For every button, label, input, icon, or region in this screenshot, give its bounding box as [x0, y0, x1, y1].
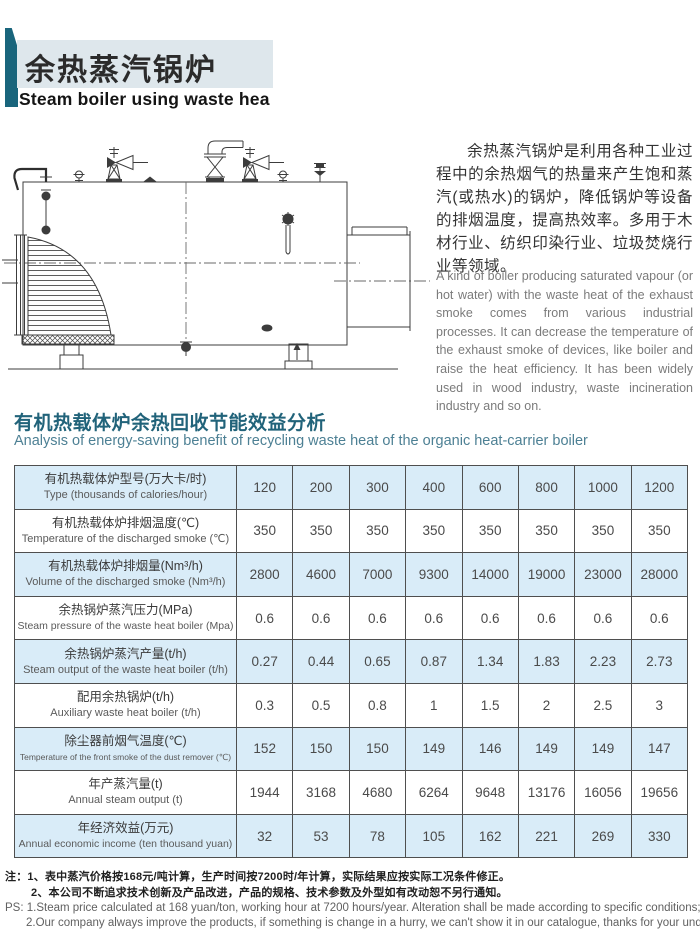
- row-label-cell: 有机热载体炉排烟量(Nm³/h)Volume of the discharged…: [15, 553, 237, 597]
- value-cell: 3: [631, 683, 687, 727]
- boiler-side-view-drawing: [0, 138, 432, 403]
- footnotes: 注：1、表中蒸汽价格按168元/吨计算，生产时间按7200时/年计算，实际结果应…: [5, 869, 695, 930]
- note-label: 注：: [5, 871, 27, 883]
- value-cell: 32: [237, 814, 293, 858]
- water-level-gauge-icon: [41, 190, 51, 235]
- value-cell: 0.6: [406, 596, 462, 640]
- table-row: 有机热载体炉型号(万大卡/时)Type (thousands of calori…: [15, 466, 688, 510]
- section-heading-en: Analysis of energy-saving benefit of rec…: [14, 433, 694, 449]
- value-cell: 0.6: [462, 596, 518, 640]
- value-cell: 4600: [293, 553, 349, 597]
- row-label-en: Annual steam output (t): [16, 793, 235, 808]
- value-cell: 350: [406, 509, 462, 553]
- value-cell: 6264: [406, 771, 462, 815]
- row-label-cell: 余热锅炉蒸汽产量(t/h)Steam output of the waste h…: [15, 640, 237, 684]
- value-cell: 400: [406, 466, 462, 510]
- value-cell: 2: [518, 683, 574, 727]
- value-cell: 0.5: [293, 683, 349, 727]
- value-cell: 0.6: [237, 596, 293, 640]
- value-cell: 350: [293, 509, 349, 553]
- value-cell: 9648: [462, 771, 518, 815]
- value-cell: 1.83: [518, 640, 574, 684]
- note-zh-1: 注：1、表中蒸汽价格按168元/吨计算，生产时间按7200时/年计算，实际结果应…: [5, 869, 695, 885]
- value-cell: 149: [575, 727, 631, 771]
- value-cell: 0.3: [237, 683, 293, 727]
- value-cell: 0.6: [575, 596, 631, 640]
- row-label-en: Volume of the discharged smoke (Nm³/h): [16, 575, 235, 590]
- value-cell: 146: [462, 727, 518, 771]
- value-cell: 350: [631, 509, 687, 553]
- value-cell: 19000: [518, 553, 574, 597]
- drain-hook-pipe: [14, 169, 52, 190]
- table-row: 除尘器前烟气温度(℃)Temperature of the front smok…: [15, 727, 688, 771]
- value-cell: 0.6: [631, 596, 687, 640]
- row-label-en: Type (thousands of calories/hour): [16, 488, 235, 503]
- value-cell: 149: [406, 727, 462, 771]
- value-cell: 9300: [406, 553, 462, 597]
- value-cell: 16056: [575, 771, 631, 815]
- note-en-2: 2.Our company always improve the product…: [5, 916, 695, 930]
- value-cell: 330: [631, 814, 687, 858]
- value-cell: 7000: [349, 553, 405, 597]
- value-cell: 152: [237, 727, 293, 771]
- row-label-cell: 年经济效益(万元)Annual economic income (ten tho…: [15, 814, 237, 858]
- table-row: 年经济效益(万元)Annual economic income (ten tho…: [15, 814, 688, 858]
- value-cell: 0.27: [237, 640, 293, 684]
- base-masonry: [22, 335, 114, 344]
- smoke-outlet-duct: [347, 227, 410, 331]
- intro-paragraph-en: A kind of boiler producing saturated vap…: [436, 267, 693, 416]
- value-cell: 0.8: [349, 683, 405, 727]
- page-title-en: Steam boiler using waste hea: [19, 89, 419, 110]
- value-cell: 269: [575, 814, 631, 858]
- row-label-zh: 余热锅炉蒸汽压力(MPa): [16, 602, 235, 619]
- row-label-zh: 余热锅炉蒸汽产量(t/h): [16, 646, 235, 663]
- value-cell: 221: [518, 814, 574, 858]
- value-cell: 53: [293, 814, 349, 858]
- value-cell: 147: [631, 727, 687, 771]
- row-label-zh: 有机热载体炉型号(万大卡/时): [16, 471, 235, 488]
- value-cell: 800: [518, 466, 574, 510]
- value-cell: 78: [349, 814, 405, 858]
- value-cell: 1944: [237, 771, 293, 815]
- row-label-cell: 余热锅炉蒸汽压力(MPa)Steam pressure of the waste…: [15, 596, 237, 640]
- value-cell: 350: [518, 509, 574, 553]
- value-cell: 3168: [293, 771, 349, 815]
- right-support-leg: [285, 343, 312, 369]
- value-cell: 2800: [237, 553, 293, 597]
- value-cell: 2.23: [575, 640, 631, 684]
- value-cell: 120: [237, 466, 293, 510]
- row-label-en: Temperature of the discharged smoke (℃): [16, 532, 235, 547]
- value-cell: 600: [462, 466, 518, 510]
- row-label-zh: 有机热载体炉排烟温度(℃): [16, 515, 235, 532]
- value-cell: 350: [237, 509, 293, 553]
- note-zh-2: 2、本公司不断追求技术创新及产品改进，产品的规格、技术参数及外型如有改动恕不另行…: [5, 885, 695, 901]
- value-cell: 150: [349, 727, 405, 771]
- table-row: 余热锅炉蒸汽产量(t/h)Steam output of the waste h…: [15, 640, 688, 684]
- value-cell: 0.65: [349, 640, 405, 684]
- row-label-en: Steam output of the waste heat boiler (t…: [16, 663, 235, 678]
- pipe-fitting-icon: [74, 171, 85, 182]
- value-cell: 1: [406, 683, 462, 727]
- row-label-en: Steam pressure of the waste heat boiler …: [16, 619, 235, 634]
- tube-bundle-section: [28, 237, 111, 335]
- row-label-zh: 年经济效益(万元): [16, 820, 235, 837]
- table-row: 余热锅炉蒸汽压力(MPa)Steam pressure of the waste…: [15, 596, 688, 640]
- value-cell: 0.6: [293, 596, 349, 640]
- row-label-zh: 有机热载体炉排烟量(Nm³/h): [16, 558, 235, 575]
- handhole-icon: [262, 325, 273, 332]
- value-cell: 0.6: [349, 596, 405, 640]
- inlet-flange: [14, 235, 27, 335]
- value-cell: 200: [293, 466, 349, 510]
- value-cell: 0.87: [406, 640, 462, 684]
- catalog-page: 余热蒸汽锅炉 Steam boiler using waste hea: [0, 0, 700, 930]
- intro-paragraph-zh: 余热蒸汽锅炉是利用各种工业过程中的余热烟气的热量来产生饱和蒸汽(或热水)的锅炉，…: [436, 140, 693, 278]
- value-cell: 23000: [575, 553, 631, 597]
- note-en-1: PS: 1.Steam price calculated at 168 yuan…: [5, 901, 695, 916]
- value-cell: 149: [518, 727, 574, 771]
- value-cell: 0.6: [518, 596, 574, 640]
- row-label-en: Auxiliary waste heat boiler (t/h): [16, 706, 235, 721]
- value-cell: 162: [462, 814, 518, 858]
- safety-valve-icon: [242, 147, 284, 182]
- value-cell: 28000: [631, 553, 687, 597]
- value-cell: 14000: [462, 553, 518, 597]
- table-row: 有机热载体炉排烟量(Nm³/h)Volume of the discharged…: [15, 553, 688, 597]
- row-label-zh: 除尘器前烟气温度(℃): [16, 733, 235, 750]
- table-row: 配用余热锅炉(t/h)Auxiliary waste heat boiler (…: [15, 683, 688, 727]
- left-support-leg: [60, 344, 83, 369]
- value-cell: 13176: [518, 771, 574, 815]
- row-label-en: Annual economic income (ten thousand yua…: [16, 837, 235, 852]
- pipe-fitting-icon: [278, 171, 289, 182]
- value-cell: 1.5: [462, 683, 518, 727]
- row-label-zh: 年产蒸汽量(t): [16, 776, 235, 793]
- row-label-cell: 年产蒸汽量(t)Annual steam output (t): [15, 771, 237, 815]
- value-cell: 350: [575, 509, 631, 553]
- spec-table: 有机热载体炉型号(万大卡/时)Type (thousands of calori…: [14, 465, 688, 858]
- row-label-cell: 有机热载体炉型号(万大卡/时)Type (thousands of calori…: [15, 466, 237, 510]
- inspection-boss-icon: [143, 177, 157, 183]
- main-steam-valve-icon: [204, 141, 243, 182]
- value-cell: 350: [349, 509, 405, 553]
- ps-label: PS:: [5, 902, 24, 914]
- row-label-zh: 配用余热锅炉(t/h): [16, 689, 235, 706]
- tee-valve-icon: [314, 164, 326, 183]
- value-cell: 4680: [349, 771, 405, 815]
- row-label-en: Temperature of the front smoke of the du…: [16, 750, 235, 765]
- section-heading-zh: 有机热载体炉余热回收节能效益分析: [14, 408, 614, 435]
- value-cell: 350: [462, 509, 518, 553]
- value-cell: 2.73: [631, 640, 687, 684]
- value-cell: 105: [406, 814, 462, 858]
- value-cell: 0.44: [293, 640, 349, 684]
- value-cell: 150: [293, 727, 349, 771]
- boiler-diagram: [0, 138, 432, 403]
- value-cell: 1000: [575, 466, 631, 510]
- spec-table-body: 有机热载体炉型号(万大卡/时)Type (thousands of calori…: [15, 466, 688, 858]
- value-cell: 19656: [631, 771, 687, 815]
- row-label-cell: 有机热载体炉排烟温度(℃)Temperature of the discharg…: [15, 509, 237, 553]
- thermometer-icon: [282, 212, 294, 254]
- table-row: 有机热载体炉排烟温度(℃)Temperature of the discharg…: [15, 509, 688, 553]
- value-cell: 1.34: [462, 640, 518, 684]
- blowdown-drain-icon: [180, 342, 192, 356]
- row-label-cell: 配用余热锅炉(t/h)Auxiliary waste heat boiler (…: [15, 683, 237, 727]
- value-cell: 2.5: [575, 683, 631, 727]
- page-title-zh: 余热蒸汽锅炉: [25, 45, 325, 89]
- value-cell: 300: [349, 466, 405, 510]
- row-label-cell: 除尘器前烟气温度(℃)Temperature of the front smok…: [15, 727, 237, 771]
- table-row: 年产蒸汽量(t)Annual steam output (t)194431684…: [15, 771, 688, 815]
- value-cell: 1200: [631, 466, 687, 510]
- safety-valve-icon: [106, 147, 148, 182]
